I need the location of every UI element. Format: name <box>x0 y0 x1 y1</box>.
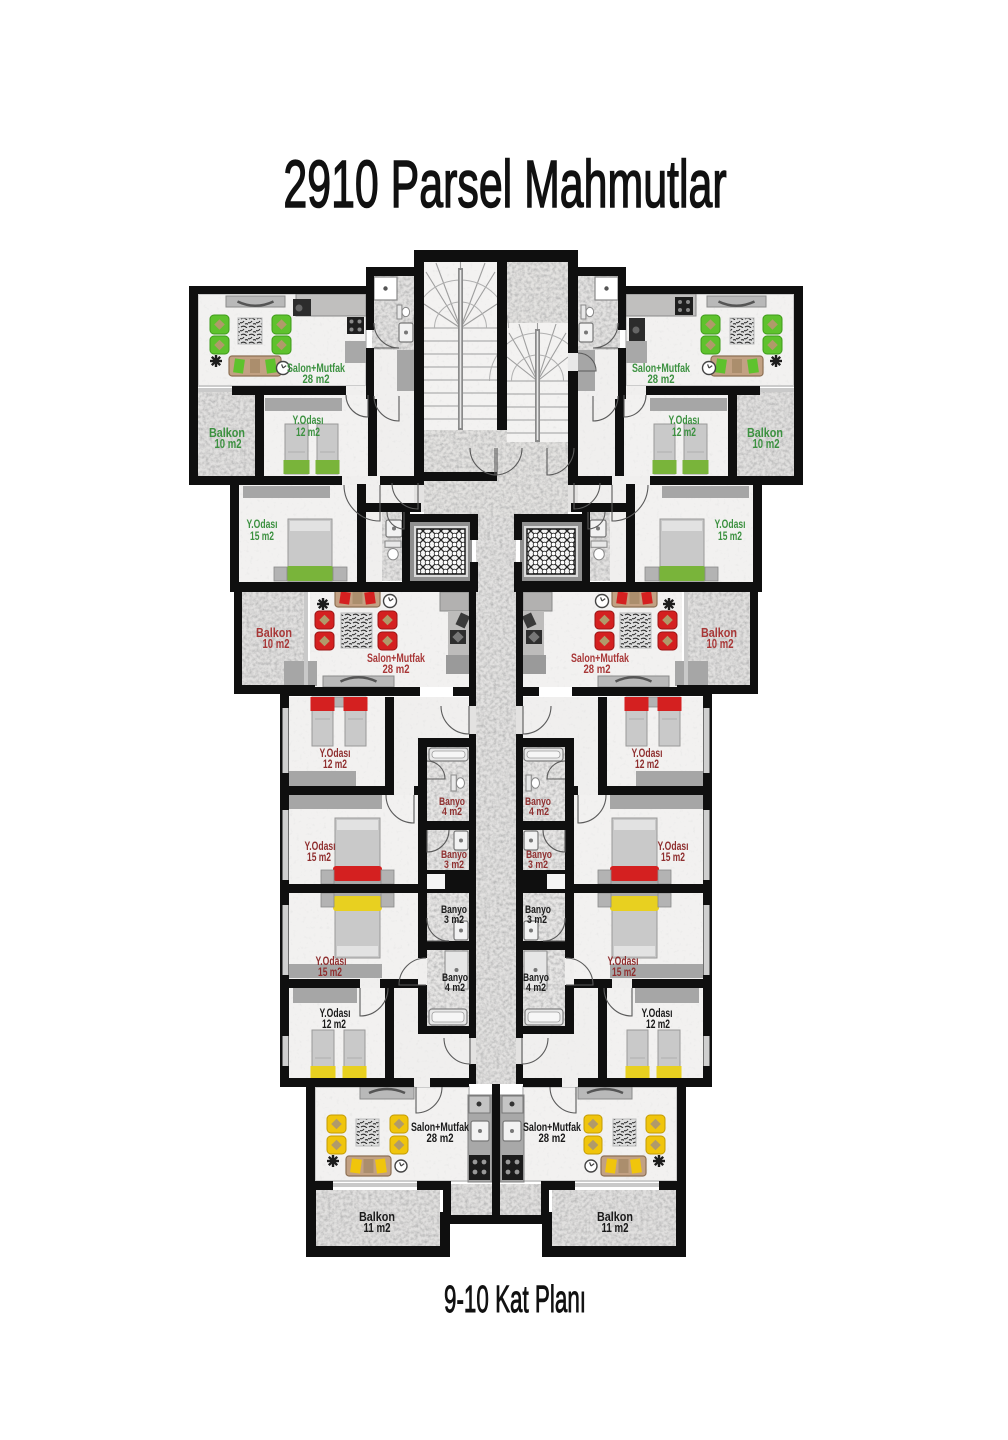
svg-text:15 m2: 15 m2 <box>718 531 742 543</box>
svg-text:10 m2: 10 m2 <box>707 637 734 651</box>
svg-text:2910 Parsel Mahmutlar: 2910 Parsel Mahmutlar <box>283 146 726 221</box>
svg-text:28 m2: 28 m2 <box>584 664 611 676</box>
svg-text:28 m2: 28 m2 <box>303 374 330 386</box>
svg-text:28 m2: 28 m2 <box>539 1133 566 1145</box>
svg-text:Y.Odası: Y.Odası <box>293 415 324 427</box>
svg-text:3 m2: 3 m2 <box>528 859 548 871</box>
svg-text:Y.Odası: Y.Odası <box>669 415 700 427</box>
svg-text:9-10 Kat Planı: 9-10 Kat Planı <box>444 1278 586 1321</box>
svg-text:12 m2: 12 m2 <box>635 759 659 771</box>
svg-text:11 m2: 11 m2 <box>602 1221 629 1235</box>
svg-text:Y.Odası: Y.Odası <box>247 519 278 531</box>
svg-text:28 m2: 28 m2 <box>648 374 675 386</box>
svg-text:3 m2: 3 m2 <box>444 859 464 871</box>
svg-text:10 m2: 10 m2 <box>263 637 290 651</box>
svg-text:12 m2: 12 m2 <box>672 427 696 439</box>
svg-text:15 m2: 15 m2 <box>250 531 274 543</box>
svg-text:12 m2: 12 m2 <box>323 759 347 771</box>
svg-text:15 m2: 15 m2 <box>612 967 636 979</box>
svg-text:12 m2: 12 m2 <box>296 427 320 439</box>
svg-text:15 m2: 15 m2 <box>318 967 342 979</box>
svg-text:28 m2: 28 m2 <box>427 1133 454 1145</box>
svg-text:11 m2: 11 m2 <box>364 1221 391 1235</box>
svg-text:12 m2: 12 m2 <box>322 1019 346 1031</box>
svg-text:4 m2: 4 m2 <box>529 806 549 818</box>
svg-text:28 m2: 28 m2 <box>383 664 410 676</box>
svg-text:12 m2: 12 m2 <box>646 1019 670 1031</box>
svg-text:4 m2: 4 m2 <box>445 982 465 994</box>
svg-text:10 m2: 10 m2 <box>215 437 242 451</box>
svg-text:15 m2: 15 m2 <box>661 852 685 864</box>
svg-text:10 m2: 10 m2 <box>753 437 780 451</box>
svg-text:15 m2: 15 m2 <box>307 852 331 864</box>
svg-text:Y.Odası: Y.Odası <box>715 519 746 531</box>
svg-text:4 m2: 4 m2 <box>526 982 546 994</box>
svg-text:4 m2: 4 m2 <box>442 806 462 818</box>
svg-text:3 m2: 3 m2 <box>527 914 547 926</box>
svg-text:3 m2: 3 m2 <box>444 914 464 926</box>
